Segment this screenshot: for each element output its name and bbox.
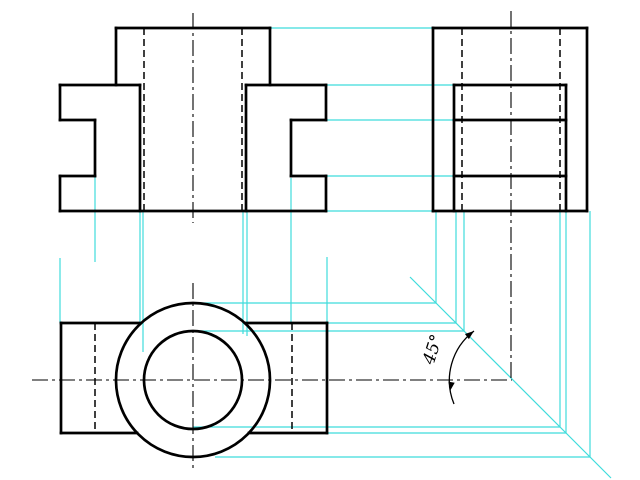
angle-annotation: 45° (419, 328, 476, 404)
projection-lines (60, 28, 611, 478)
centerlines (32, 11, 512, 472)
drawing-area: 45° (0, 0, 640, 480)
drawing-canvas: 45° (0, 0, 640, 480)
angle-label: 45° (419, 332, 448, 368)
angle-dimension-arc (449, 331, 474, 404)
dimension-arrowhead (447, 382, 455, 392)
side-view (433, 28, 587, 211)
